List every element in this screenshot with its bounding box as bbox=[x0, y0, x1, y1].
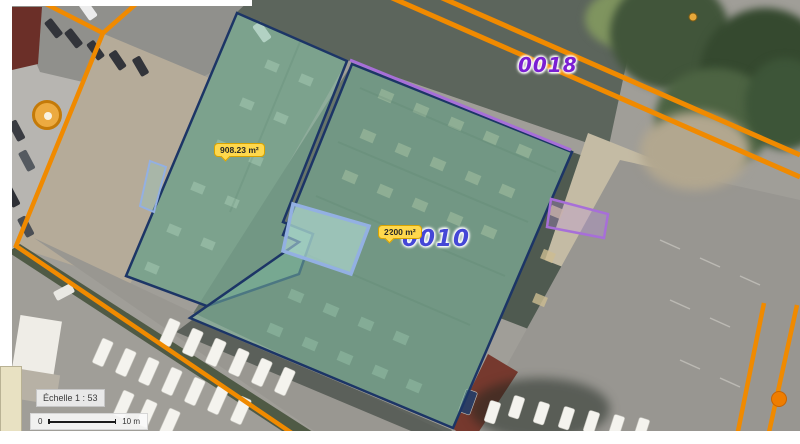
viewport-margin-bottom bbox=[0, 431, 800, 444]
scale-indicator: Échelle 1 : 53 bbox=[36, 389, 105, 407]
area-measurement-label: 2200 m² bbox=[378, 225, 422, 239]
scalebar: 0 10 m bbox=[30, 413, 148, 430]
viewport-margin-left bbox=[0, 0, 12, 366]
purple-rectangle[interactable] bbox=[547, 199, 608, 238]
parcel-number-0018: 0018 bbox=[518, 53, 578, 77]
small-orange-dot[interactable] bbox=[689, 13, 697, 21]
map-viewport[interactable]: 908.23 m² 2200 m² 0018 0010 Échelle 1 : … bbox=[0, 0, 800, 444]
boundary-east-inner bbox=[735, 303, 764, 444]
parking-marks bbox=[660, 240, 760, 387]
parked-cars-left bbox=[3, 119, 75, 301]
scalebar-distance: 10 m bbox=[122, 417, 140, 426]
orange-vertex-dot[interactable] bbox=[772, 392, 787, 407]
cadastre-overlay bbox=[0, 0, 800, 444]
scalebar-line bbox=[48, 421, 116, 423]
scalebar-zero: 0 bbox=[38, 417, 42, 426]
area-measurement-label: 908.23 m² bbox=[214, 143, 265, 157]
viewport-margin-top bbox=[0, 0, 252, 6]
boundary-east-outer bbox=[766, 305, 797, 444]
orange-circle-marker[interactable] bbox=[34, 102, 61, 129]
